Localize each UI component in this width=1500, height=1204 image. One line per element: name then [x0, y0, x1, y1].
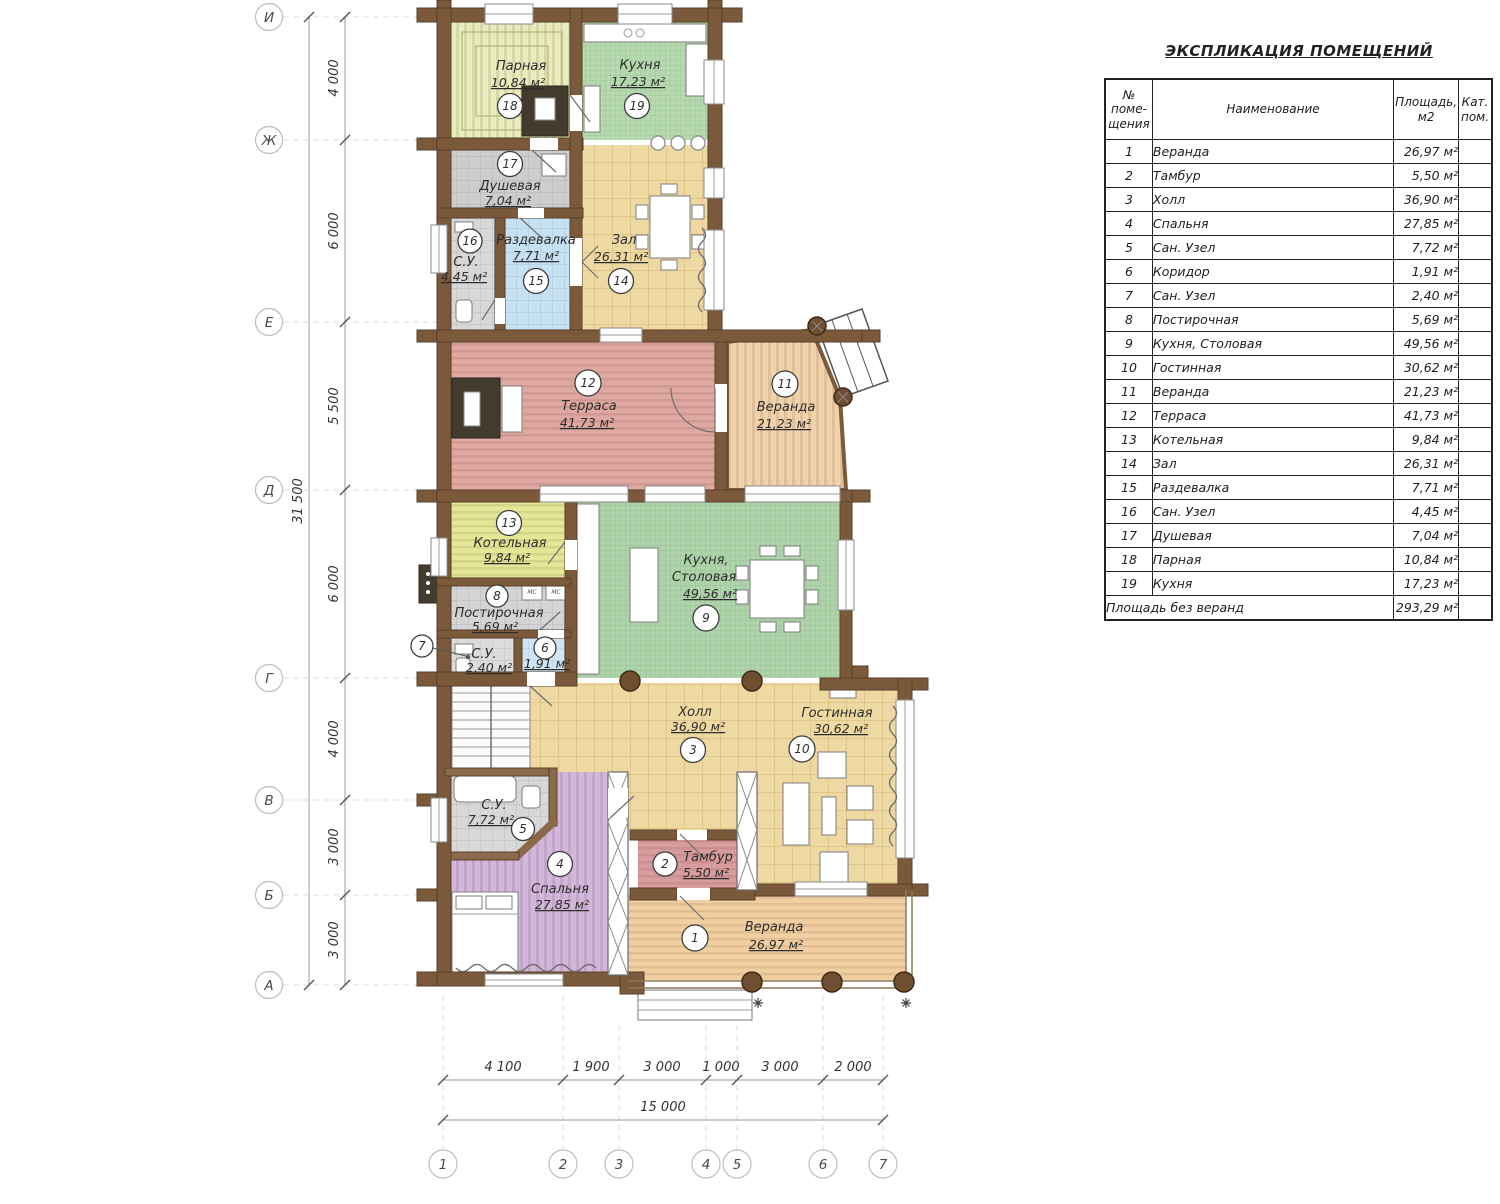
- dim-bottom-2: 3 000: [643, 1060, 680, 1075]
- table-row: 2Тамбур5,50 м²: [1105, 164, 1492, 188]
- room-label-vestibule: 2Тамбур5,50 м²: [653, 850, 733, 880]
- axis-row-labels: И Ж Е Д Г В Б А: [256, 4, 283, 999]
- svg-text:Холл: Холл: [677, 705, 711, 720]
- dim-bottom-4: 3 000: [761, 1060, 798, 1075]
- svg-text:26,97 м²: 26,97 м²: [749, 937, 803, 952]
- svg-text:2,40 м²: 2,40 м²: [466, 660, 512, 675]
- header-number: № поме- щения: [1105, 79, 1152, 140]
- dimensions-left: 4 000 6 000 5 500 6 000 4 000 3 000 3 00…: [256, 4, 351, 999]
- svg-text:11: 11: [777, 377, 792, 391]
- staircase: [452, 684, 530, 770]
- svg-text:4: 4: [702, 1157, 711, 1173]
- window: [600, 328, 642, 342]
- table-row: 4Спальня27,85 м²: [1105, 212, 1492, 236]
- dim-bottom-3: 1 000: [702, 1060, 739, 1075]
- window: [896, 700, 914, 858]
- svg-text:5,69 м²: 5,69 м²: [472, 619, 518, 634]
- svg-text:1: 1: [439, 1157, 448, 1173]
- sauna-stove: [522, 86, 568, 136]
- svg-text:Веранда: Веранда: [757, 400, 816, 415]
- window: [704, 168, 724, 198]
- svg-text:10,84 м²: 10,84 м²: [491, 75, 545, 90]
- table-row: 7Сан. Узел2,40 м²: [1105, 284, 1492, 308]
- svg-text:Ж: Ж: [261, 133, 277, 149]
- svg-text:Душевая: Душевая: [478, 179, 540, 194]
- table-header-row: № поме- щения Наименование Площадь, м2 К…: [1105, 79, 1492, 140]
- dim-bottom-0: 4 100: [484, 1060, 521, 1075]
- svg-text:26,31 м²: 26,31 м²: [594, 249, 648, 264]
- svg-text:41,73 м²: 41,73 м²: [560, 415, 614, 430]
- svg-text:Кухня: Кухня: [620, 58, 661, 73]
- table-row: 18Парная10,84 м²: [1105, 548, 1492, 572]
- svg-text:Е: Е: [265, 315, 274, 331]
- window: [838, 540, 854, 610]
- dim-bottom-5: 2 000: [834, 1060, 871, 1075]
- table-row: 17Душевая7,04 м²: [1105, 524, 1492, 548]
- svg-text:Парная: Парная: [496, 59, 546, 74]
- dimensions-bottom: 4 100 1 900 3 000 1 000 3 000 2 000 15 0…: [429, 1060, 897, 1178]
- dim-total-height: 31 500: [291, 478, 306, 524]
- svg-text:Зал: Зал: [612, 233, 637, 248]
- table-row: 11Веранда21,23 м²: [1105, 380, 1492, 404]
- svg-text:Кухня,: Кухня,: [683, 553, 728, 568]
- svg-text:21,23 м²: 21,23 м²: [757, 416, 811, 431]
- dim-left-2: 5 500: [327, 387, 342, 424]
- svg-text:2: 2: [661, 857, 669, 871]
- washer-label: МС: [551, 589, 561, 596]
- dim-left-0: 4 000: [327, 59, 342, 96]
- window: [431, 798, 447, 842]
- svg-text:4,45 м²: 4,45 м²: [441, 269, 487, 284]
- svg-text:Терраса: Терраса: [561, 399, 617, 414]
- dim-left-1: 6 000: [327, 212, 342, 249]
- window: [795, 882, 867, 896]
- svg-text:Веранда: Веранда: [745, 920, 804, 935]
- table-row: 5Сан. Узел7,72 м²: [1105, 236, 1492, 260]
- table-row: 9Кухня, Столовая49,56 м²: [1105, 332, 1492, 356]
- svg-text:18: 18: [502, 99, 518, 113]
- svg-text:14: 14: [613, 274, 628, 288]
- dim-total-width: 15 000: [640, 1100, 686, 1115]
- svg-text:Спальня: Спальня: [531, 882, 589, 897]
- svg-text:49,56 м²: 49,56 м²: [683, 586, 737, 601]
- svg-text:Тамбур: Тамбур: [683, 850, 733, 865]
- svg-text:7,72 м²: 7,72 м²: [468, 812, 514, 827]
- washer-label: МС: [527, 589, 537, 596]
- dim-bottom-1: 1 900: [572, 1060, 609, 1075]
- svg-text:17: 17: [502, 157, 518, 171]
- svg-text:2: 2: [559, 1157, 568, 1173]
- svg-text:7,71 м²: 7,71 м²: [513, 248, 559, 263]
- footer-area: 293,29 м²: [1394, 596, 1459, 621]
- window: [540, 486, 628, 502]
- svg-text:6: 6: [541, 641, 549, 655]
- window: [745, 486, 840, 502]
- svg-text:Гостинная: Гостинная: [801, 706, 872, 721]
- svg-text:7: 7: [418, 639, 426, 653]
- header-area: Площадь, м2: [1394, 79, 1459, 140]
- svg-text:10: 10: [794, 742, 810, 756]
- dim-left-4: 4 000: [327, 720, 342, 757]
- table-row: 1Веранда26,97 м²: [1105, 140, 1492, 164]
- svg-text:36,90 м²: 36,90 м²: [671, 719, 725, 734]
- svg-text:Столовая: Столовая: [672, 570, 736, 585]
- svg-text:9: 9: [702, 611, 710, 625]
- svg-text:Котельная: Котельная: [473, 536, 546, 551]
- svg-text:4: 4: [556, 857, 564, 871]
- svg-text:А: А: [263, 978, 273, 994]
- window: [704, 60, 724, 104]
- svg-text:27,85 м²: 27,85 м²: [535, 897, 589, 912]
- table-row: 12Терраса41,73 м²: [1105, 404, 1492, 428]
- window: [704, 230, 724, 310]
- table-row: 16Сан. Узел4,45 м²: [1105, 500, 1492, 524]
- window: [485, 974, 563, 986]
- page: МС МС: [0, 0, 1500, 1204]
- dim-left-5: 3 000: [327, 828, 342, 865]
- bed: [452, 892, 518, 976]
- axis-column-labels: 1 2 3 4 5 6 7: [429, 1150, 897, 1178]
- fireplace: [452, 378, 500, 438]
- table-row: 10Гостинная30,62 м²: [1105, 356, 1492, 380]
- entrance-steps: [638, 990, 752, 1020]
- svg-text:5,50 м²: 5,50 м²: [683, 865, 729, 880]
- svg-text:1,91 м²: 1,91 м²: [524, 656, 570, 671]
- svg-text:7: 7: [879, 1157, 888, 1173]
- table-row: 14Зал26,31 м²: [1105, 452, 1492, 476]
- svg-text:12: 12: [580, 376, 595, 390]
- svg-text:Раздевалка: Раздевалка: [496, 233, 575, 248]
- dim-left-6: 3 000: [327, 921, 342, 958]
- svg-text:Б: Б: [264, 888, 273, 904]
- window: [485, 4, 533, 24]
- svg-text:9,84 м²: 9,84 м²: [484, 550, 530, 565]
- svg-text:8: 8: [493, 589, 501, 603]
- svg-text:13: 13: [501, 516, 516, 530]
- window: [645, 486, 705, 502]
- svg-text:С.У.: С.У.: [481, 798, 506, 813]
- svg-text:И: И: [264, 10, 274, 26]
- table-row: 3Холл36,90 м²: [1105, 188, 1492, 212]
- window: [431, 225, 447, 273]
- braced-wall: [737, 772, 757, 890]
- svg-text:Д: Д: [263, 483, 275, 499]
- explication-panel: ЭКСПЛИКАЦИЯ ПОМЕЩЕНИЙ № поме- щения Наим…: [1104, 42, 1494, 621]
- svg-text:17,23 м²: 17,23 м²: [611, 74, 665, 89]
- table-footer-row: Площадь без веранд 293,29 м²: [1105, 596, 1492, 621]
- svg-text:5: 5: [733, 1157, 742, 1173]
- svg-text:5: 5: [519, 822, 527, 836]
- table-row: 19Кухня17,23 м²: [1105, 572, 1492, 596]
- window: [618, 4, 672, 24]
- svg-text:В: В: [264, 793, 273, 809]
- explication-table: № поме- щения Наименование Площадь, м2 К…: [1104, 78, 1493, 621]
- header-name: Наименование: [1152, 79, 1393, 140]
- svg-text:7,04 м²: 7,04 м²: [485, 193, 531, 208]
- svg-text:1: 1: [691, 931, 699, 945]
- svg-text:30,62 м²: 30,62 м²: [814, 721, 868, 736]
- table-row: 8Постирочная5,69 м²: [1105, 308, 1492, 332]
- footer-label: Площадь без веранд: [1105, 596, 1394, 621]
- svg-text:3: 3: [689, 743, 697, 757]
- table-row: 15Раздевалка7,71 м²: [1105, 476, 1492, 500]
- table-row: 6Коридор1,91 м²: [1105, 260, 1492, 284]
- header-category: Кат. пом.: [1459, 79, 1492, 140]
- svg-text:3: 3: [615, 1157, 624, 1173]
- table-row: 13Котельная9,84 м²: [1105, 428, 1492, 452]
- window: [431, 538, 447, 576]
- table-title: ЭКСПЛИКАЦИЯ ПОМЕЩЕНИЙ: [1104, 42, 1494, 60]
- svg-text:19: 19: [629, 99, 644, 113]
- dim-left-3: 6 000: [327, 565, 342, 602]
- svg-text:6: 6: [819, 1157, 828, 1173]
- svg-text:С.У.: С.У.: [453, 255, 478, 270]
- svg-text:15: 15: [528, 274, 543, 288]
- svg-text:16: 16: [462, 234, 478, 248]
